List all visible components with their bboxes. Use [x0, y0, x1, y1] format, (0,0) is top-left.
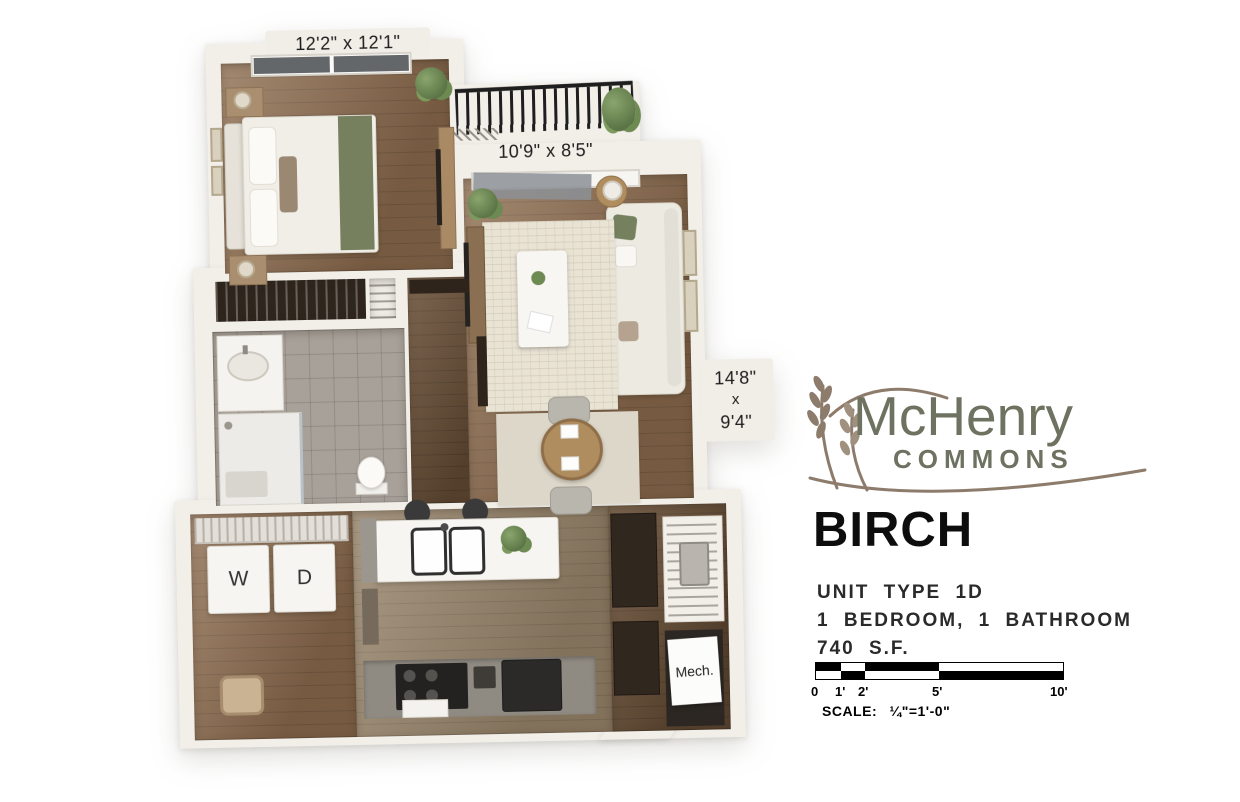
scale-tick-2: 2'	[858, 684, 868, 699]
sink-faucet	[440, 523, 448, 531]
scale-tick-0: 0	[811, 684, 818, 699]
window-blind	[254, 56, 330, 74]
bedroom-window	[251, 52, 412, 77]
bed-sage-runner	[338, 116, 375, 251]
mech-unit: Mech.	[667, 636, 722, 705]
scale-bar-row-bottom	[816, 671, 1063, 679]
scale-segment	[865, 663, 939, 671]
wall-art	[683, 280, 698, 332]
bed-pillow	[248, 127, 277, 186]
sofa-pillow-taupe	[618, 321, 638, 341]
scale-segment	[865, 671, 939, 679]
unit-type: UNIT TYPE 1D	[817, 582, 984, 604]
scale-label: SCALE:	[822, 703, 877, 719]
kitchen-cabinet	[362, 589, 379, 645]
wire-basket-unit	[369, 278, 396, 319]
scale-bar-row-top	[816, 663, 1063, 671]
living-dim-width: 14'8"	[714, 367, 757, 390]
wall-art	[210, 128, 223, 162]
hall-panel	[476, 336, 487, 406]
living-dim-height: 9'4"	[720, 411, 752, 434]
kitchen-cabinet	[360, 519, 377, 583]
place-setting	[561, 456, 579, 470]
bed-accent-pillow	[279, 156, 298, 212]
dryer: D	[273, 543, 336, 612]
refrigerator	[501, 659, 562, 712]
entry-door	[613, 621, 661, 696]
small-appliance	[473, 666, 495, 688]
washer: W	[207, 545, 270, 614]
scale-segment	[841, 663, 866, 671]
laundry-basket	[220, 675, 265, 716]
scale-tick-1: 1'	[835, 684, 845, 699]
place-setting	[560, 424, 578, 438]
scale-segment	[939, 671, 1063, 679]
scale-tick-5: 5'	[932, 684, 942, 699]
brand-name: McHenry	[853, 384, 1073, 448]
living-dimension-label: 14'8" x 9'4"	[697, 358, 775, 442]
living-dim-x: x	[732, 389, 740, 411]
kitchen-sink	[448, 526, 485, 575]
brand-subname: COMMONS	[893, 444, 1074, 475]
kitchen-sink	[410, 527, 447, 576]
hall-door	[409, 279, 469, 294]
coffee-table	[517, 251, 569, 348]
wall-art	[211, 166, 224, 196]
dining-chair	[550, 486, 593, 515]
shower-bench	[225, 471, 268, 498]
scale-segment	[841, 671, 866, 679]
unit-area: 740 S.F.	[817, 638, 910, 660]
laundry-shelf	[194, 515, 349, 544]
vacuum	[679, 542, 710, 587]
scale-note: SCALE: ¼"=1'-0"	[822, 703, 950, 719]
wall-art	[682, 230, 697, 276]
balcony-dimension-label: 10'9" x 8'5"	[450, 135, 641, 167]
scale-tick-10: 10'	[1050, 684, 1068, 699]
oven-towel	[402, 699, 448, 718]
scale-bar	[815, 662, 1064, 680]
sofa-pillow-white	[615, 245, 637, 267]
floor-plan: 12'2" x 12'1" 14'8" x 9'4" 10'9" x 8'5"	[150, 20, 790, 757]
scale-ratio: ¼"=1'-0"	[890, 703, 951, 719]
window-blind	[333, 55, 409, 73]
unit-config: 1 BEDROOM, 1 BATHROOM	[817, 610, 1132, 632]
scale-segment	[816, 671, 841, 679]
entry-door	[610, 513, 658, 608]
scale-segment	[939, 663, 1063, 671]
scale-segment	[816, 663, 841, 671]
sofa-pillow-sage	[611, 214, 638, 241]
sink-faucet	[243, 345, 248, 354]
unit-name: BIRCH	[813, 502, 973, 558]
bed-pillow	[249, 189, 278, 248]
